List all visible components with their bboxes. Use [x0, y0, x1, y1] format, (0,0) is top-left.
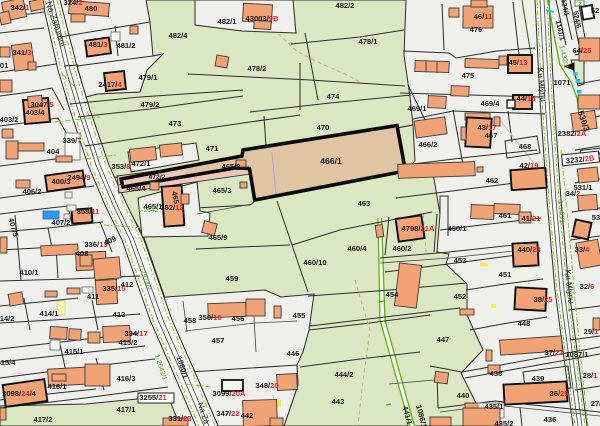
svg-text:439: 439 — [532, 374, 545, 383]
svg-text:460/1: 460/1 — [447, 224, 467, 233]
svg-text:33/4: 33/4 — [575, 245, 591, 254]
svg-text:34/2: 34/2 — [566, 189, 581, 198]
svg-text:348/20: 348/20 — [255, 381, 278, 390]
svg-text:475: 475 — [462, 71, 475, 80]
svg-text:411: 411 — [87, 292, 100, 301]
svg-text:28/1: 28/1 — [583, 371, 599, 380]
svg-text:435/1: 435/1 — [484, 402, 504, 411]
svg-text:443: 443 — [332, 397, 345, 406]
svg-text:27/: 27/ — [591, 399, 600, 408]
svg-text:456: 456 — [232, 314, 245, 323]
svg-text:406/2: 406/2 — [22, 187, 41, 196]
svg-text:1071: 1071 — [554, 78, 572, 87]
svg-text:347/22: 347/22 — [216, 409, 239, 418]
svg-text:52: 52 — [591, 6, 599, 15]
svg-text:454: 454 — [386, 290, 399, 299]
svg-text:64/25: 64/25 — [572, 46, 592, 55]
svg-text:461: 461 — [499, 211, 512, 220]
svg-text:29/1: 29/1 — [584, 327, 600, 336]
svg-text:414/1: 414/1 — [39, 309, 59, 318]
svg-text:42/19: 42/19 — [519, 161, 538, 170]
svg-text:460/4: 460/4 — [347, 244, 367, 253]
svg-text:463: 463 — [358, 199, 371, 208]
svg-text:334/17: 334/17 — [124, 329, 147, 338]
svg-text:44/15: 44/15 — [516, 94, 536, 103]
svg-text:469/1: 469/1 — [407, 104, 427, 113]
svg-text:46/11: 46/11 — [474, 12, 493, 21]
svg-text:460/10: 460/10 — [303, 258, 326, 267]
svg-text:417/1: 417/1 — [116, 405, 136, 414]
svg-text:335/15: 335/15 — [102, 284, 126, 293]
svg-text:467: 467 — [485, 131, 498, 140]
svg-text:350/16: 350/16 — [198, 313, 221, 322]
svg-text:2494/9: 2494/9 — [67, 173, 90, 182]
svg-text:465/9: 465/9 — [208, 233, 227, 242]
svg-text:481/2: 481/2 — [116, 41, 135, 50]
svg-text:465/3: 465/3 — [212, 186, 231, 195]
svg-text:480: 480 — [85, 4, 98, 13]
svg-text:462: 462 — [486, 176, 499, 185]
svg-text:473: 473 — [169, 119, 182, 128]
svg-text:416/1: 416/1 — [47, 382, 67, 391]
svg-text:481/3: 481/3 — [88, 40, 107, 49]
svg-text:342/1: 342/1 — [10, 3, 30, 12]
svg-text:444/2: 444/2 — [334, 370, 353, 379]
svg-text:479/2: 479/2 — [140, 100, 159, 109]
svg-text:413: 413 — [113, 310, 126, 319]
svg-text:468: 468 — [519, 142, 532, 151]
svg-text:53: 53 — [592, 213, 600, 222]
svg-text:341/3: 341/3 — [12, 48, 31, 57]
svg-text:401: 401 — [0, 61, 9, 70]
svg-text:435/2: 435/2 — [494, 419, 513, 426]
svg-text:414/2: 414/2 — [0, 314, 15, 323]
svg-text:440/23: 440/23 — [517, 245, 540, 254]
svg-text:442: 442 — [241, 411, 254, 420]
svg-text:1087/1: 1087/1 — [565, 350, 589, 359]
svg-text:1-2642: 1-2642 — [137, 207, 158, 214]
svg-text:858/11: 858/11 — [77, 207, 101, 216]
svg-text:404: 404 — [47, 147, 60, 156]
svg-text:331/23: 331/23 — [168, 414, 191, 423]
svg-text:45/13: 45/13 — [508, 58, 527, 67]
svg-text:400/3: 400/3 — [51, 177, 70, 186]
svg-text:353/8: 353/8 — [111, 162, 130, 171]
svg-text:482/2: 482/2 — [335, 1, 354, 10]
svg-text:3099/20A: 3099/20A — [213, 389, 246, 398]
svg-text:446: 446 — [287, 349, 300, 358]
svg-text:472/2: 472/2 — [148, 174, 165, 181]
svg-text:403/4: 403/4 — [25, 108, 45, 117]
svg-text:324/2: 324/2 — [63, 0, 82, 7]
svg-text:2417/4: 2417/4 — [98, 80, 122, 89]
svg-text:455: 455 — [293, 311, 306, 320]
svg-text:451: 451 — [499, 270, 512, 279]
svg-text:440: 440 — [457, 391, 470, 400]
svg-text:466/2: 466/2 — [418, 140, 437, 149]
svg-text:3255/21: 3255/21 — [139, 393, 167, 402]
svg-text:415/2: 415/2 — [118, 338, 137, 347]
svg-text:466/1: 466/1 — [320, 156, 342, 166]
svg-text:459: 459 — [226, 274, 239, 283]
svg-text:415/4: 415/4 — [0, 358, 16, 367]
svg-text:408: 408 — [76, 249, 89, 258]
svg-text:447: 447 — [437, 335, 450, 344]
svg-text:457: 457 — [212, 336, 225, 345]
svg-text:474: 474 — [327, 92, 340, 101]
svg-text:482/4: 482/4 — [168, 31, 188, 40]
svg-text:36/29: 36/29 — [549, 389, 568, 398]
svg-text:415/1: 415/1 — [64, 347, 84, 356]
svg-text:452: 452 — [454, 292, 467, 301]
svg-text:416/3: 416/3 — [116, 374, 135, 383]
svg-text:471: 471 — [206, 144, 219, 153]
svg-text:482/1: 482/1 — [217, 17, 237, 26]
svg-text:476: 476 — [470, 25, 483, 34]
svg-text:4798/21A: 4798/21A — [402, 224, 435, 233]
svg-text:469/4: 469/4 — [480, 99, 500, 108]
svg-text:460/2: 460/2 — [392, 244, 411, 253]
svg-text:470: 470 — [317, 123, 330, 132]
svg-text:478/1: 478/1 — [358, 37, 378, 46]
svg-text:3098/24/4: 3098/24/4 — [2, 389, 37, 398]
svg-text:339/7: 339/7 — [62, 136, 81, 145]
svg-text:410/1: 410/1 — [19, 268, 39, 277]
svg-text:403/2: 403/2 — [0, 115, 19, 124]
svg-text:407/2: 407/2 — [51, 218, 70, 227]
svg-text:479/1: 479/1 — [138, 73, 158, 82]
svg-text:352/12: 352/12 — [160, 203, 183, 212]
svg-text:38/25: 38/25 — [533, 295, 553, 304]
svg-text:43003/9B: 43003/9B — [246, 14, 279, 23]
svg-text:458: 458 — [184, 316, 197, 325]
svg-text:417/2: 417/2 — [33, 415, 52, 424]
svg-text:37/27: 37/27 — [544, 348, 563, 357]
svg-text:436: 436 — [544, 415, 557, 424]
svg-text:465/8: 465/8 — [221, 162, 240, 171]
svg-text:32/6: 32/6 — [580, 282, 595, 291]
svg-text:453: 453 — [454, 256, 467, 265]
svg-text:472/1: 472/1 — [131, 159, 151, 168]
svg-text:438: 438 — [490, 369, 503, 378]
svg-text:41/21: 41/21 — [521, 214, 541, 223]
svg-text:478/2: 478/2 — [247, 64, 266, 73]
svg-text:448: 448 — [518, 319, 531, 328]
svg-text:465/4: 465/4 — [126, 184, 146, 193]
